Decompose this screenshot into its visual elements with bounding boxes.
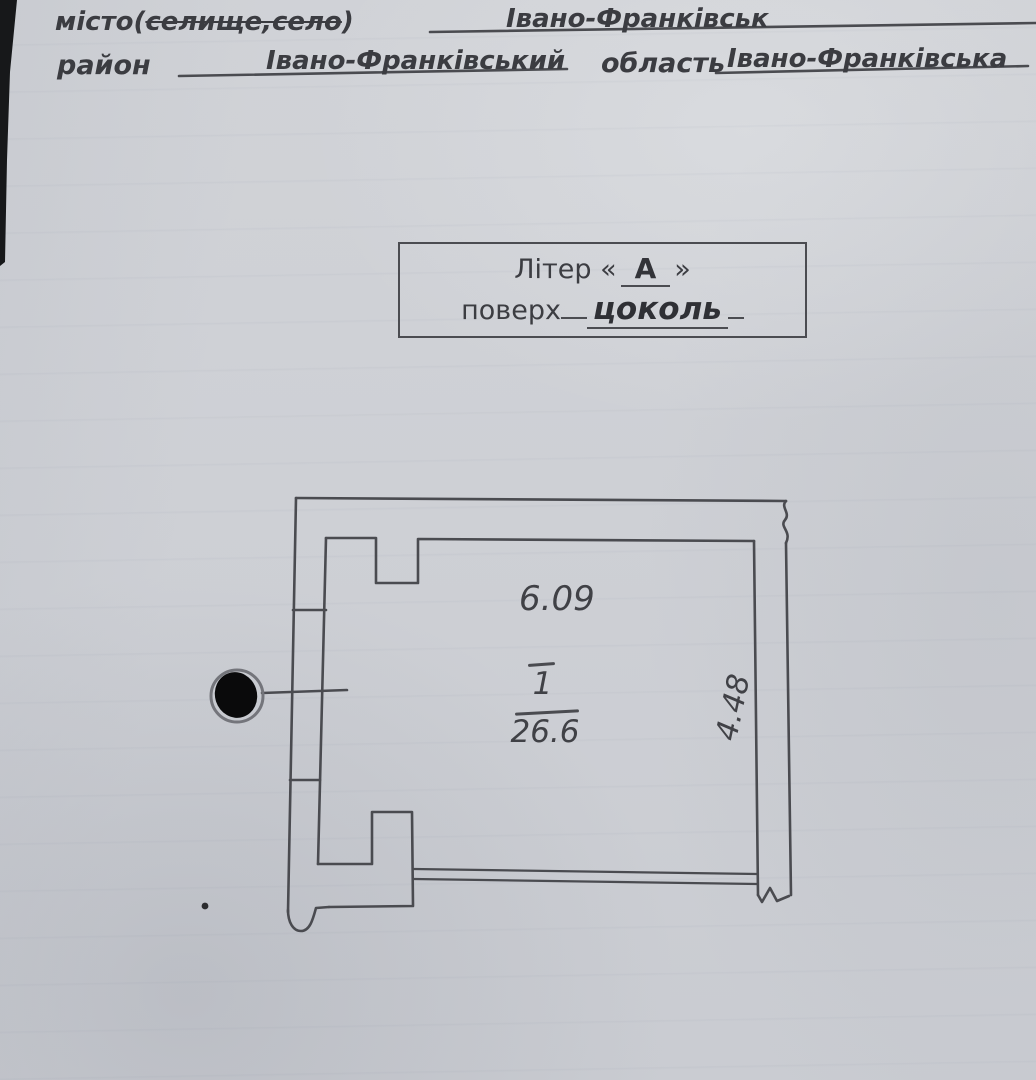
plan-bottom-left-pilaster bbox=[318, 812, 413, 907]
region-label: область bbox=[601, 48, 725, 79]
city-label-suffix: ) bbox=[342, 7, 354, 37]
city-label-prefix: місто( bbox=[55, 7, 145, 37]
floor-plan-drawing bbox=[0, 0, 1036, 1080]
letter-floor-box: Літер « А » поверх цоколь bbox=[398, 242, 807, 338]
ink-dot bbox=[202, 903, 209, 910]
room-number: 1 bbox=[500, 666, 585, 702]
floor-row: поверх цоколь bbox=[461, 291, 744, 329]
letter-label-close: » bbox=[674, 254, 691, 285]
district-value: Івано-Франківський bbox=[266, 46, 565, 76]
plan-break-line-bottom-right bbox=[758, 888, 789, 902]
plan-bottom-partition-line1 bbox=[414, 869, 757, 874]
scanned-document-page: місто(селище,село) Івано-Франківськ райо… bbox=[0, 0, 1036, 1080]
width-dimension-label: 6.09 bbox=[519, 579, 595, 619]
letter-label: Літер « bbox=[514, 254, 616, 285]
region-value: Івано-Франківська bbox=[727, 44, 1007, 74]
plan-inner-left-wall bbox=[318, 538, 326, 864]
plan-outer-left-wall bbox=[288, 498, 296, 912]
height-dimension-label-wrap: 4.48 bbox=[700, 690, 770, 760]
floor-label: поверх bbox=[461, 295, 561, 326]
plan-inner-top-wall-with-pier bbox=[326, 538, 754, 583]
plan-bottom-partition-line2 bbox=[414, 879, 757, 884]
floor-underline-gap bbox=[561, 317, 587, 319]
city-label: місто(селище,село) bbox=[55, 7, 354, 37]
floor-value: цоколь bbox=[587, 291, 728, 329]
room-area: 26.6 bbox=[500, 714, 590, 750]
plan-outer-right-wall bbox=[786, 543, 791, 895]
letter-row: Літер « А » bbox=[514, 252, 691, 287]
plan-outer-top-wall bbox=[296, 498, 786, 501]
city-label-struck-options: селище,село bbox=[145, 7, 342, 37]
floor-underline-tail bbox=[728, 317, 744, 319]
seal-leader-line bbox=[262, 690, 347, 693]
city-value: Івано-Франківськ bbox=[506, 4, 769, 34]
plan-break-line-top-right bbox=[783, 501, 787, 543]
letter-value: А bbox=[621, 252, 671, 287]
district-label: район bbox=[57, 50, 151, 81]
plan-break-line-bottom-left bbox=[288, 907, 329, 931]
